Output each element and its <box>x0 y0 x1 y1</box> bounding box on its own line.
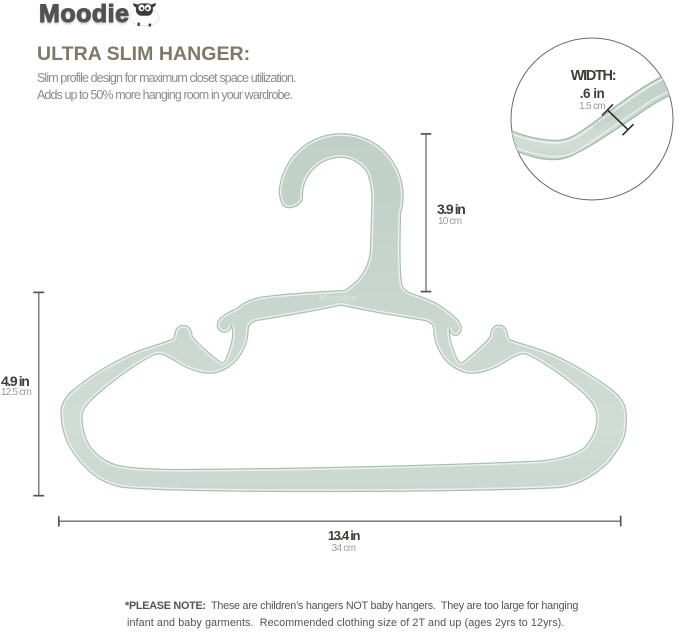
svg-text:Moodie®: Moodie® <box>319 294 361 305</box>
